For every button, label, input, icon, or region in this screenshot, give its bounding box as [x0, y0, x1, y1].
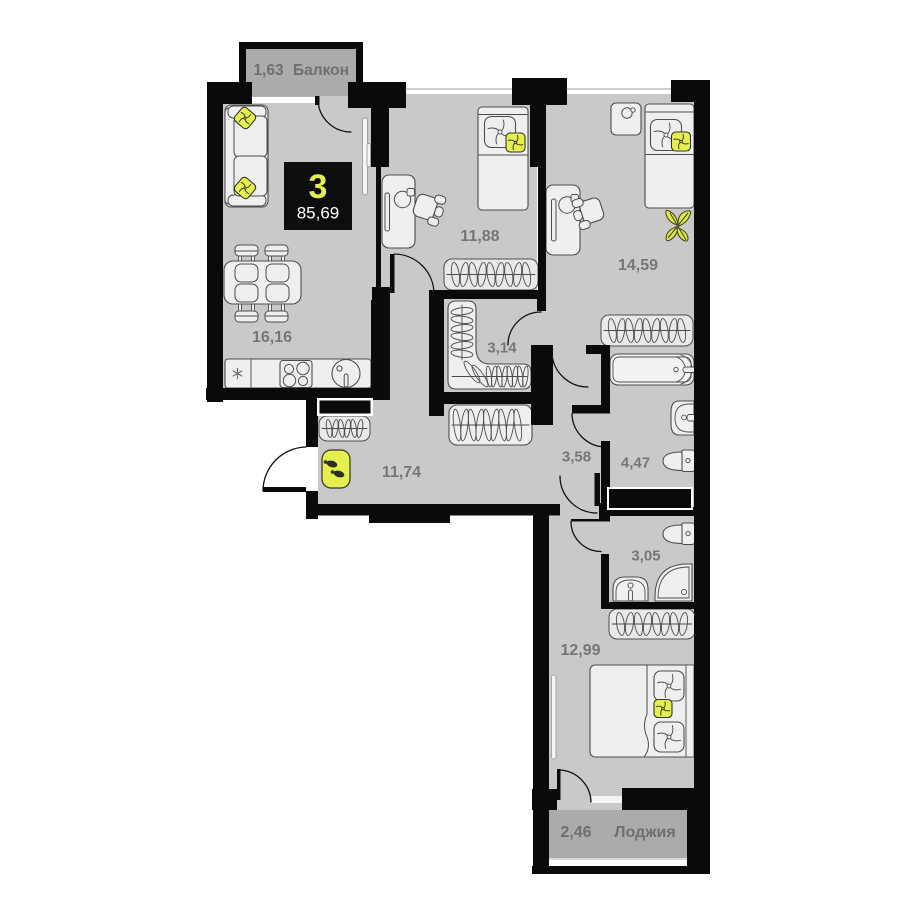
- svg-text:11,74: 11,74: [382, 464, 421, 481]
- svg-text:16,16: 16,16: [252, 329, 292, 346]
- svg-text:2,46: 2,46: [560, 824, 591, 841]
- svg-text:11,88: 11,88: [460, 228, 499, 245]
- svg-text:1,63: 1,63: [253, 62, 284, 79]
- svg-text:Лоджия: Лоджия: [614, 824, 675, 841]
- svg-text:12,99: 12,99: [560, 642, 600, 659]
- svg-text:3: 3: [309, 168, 328, 206]
- svg-text:85,69: 85,69: [297, 204, 340, 223]
- svg-text:4,47: 4,47: [621, 455, 650, 472]
- svg-text:3,05: 3,05: [631, 548, 660, 565]
- svg-text:14,59: 14,59: [618, 257, 658, 274]
- svg-text:3,58: 3,58: [562, 449, 591, 466]
- svg-text:3,14: 3,14: [487, 340, 517, 357]
- svg-text:Балкон: Балкон: [293, 62, 349, 79]
